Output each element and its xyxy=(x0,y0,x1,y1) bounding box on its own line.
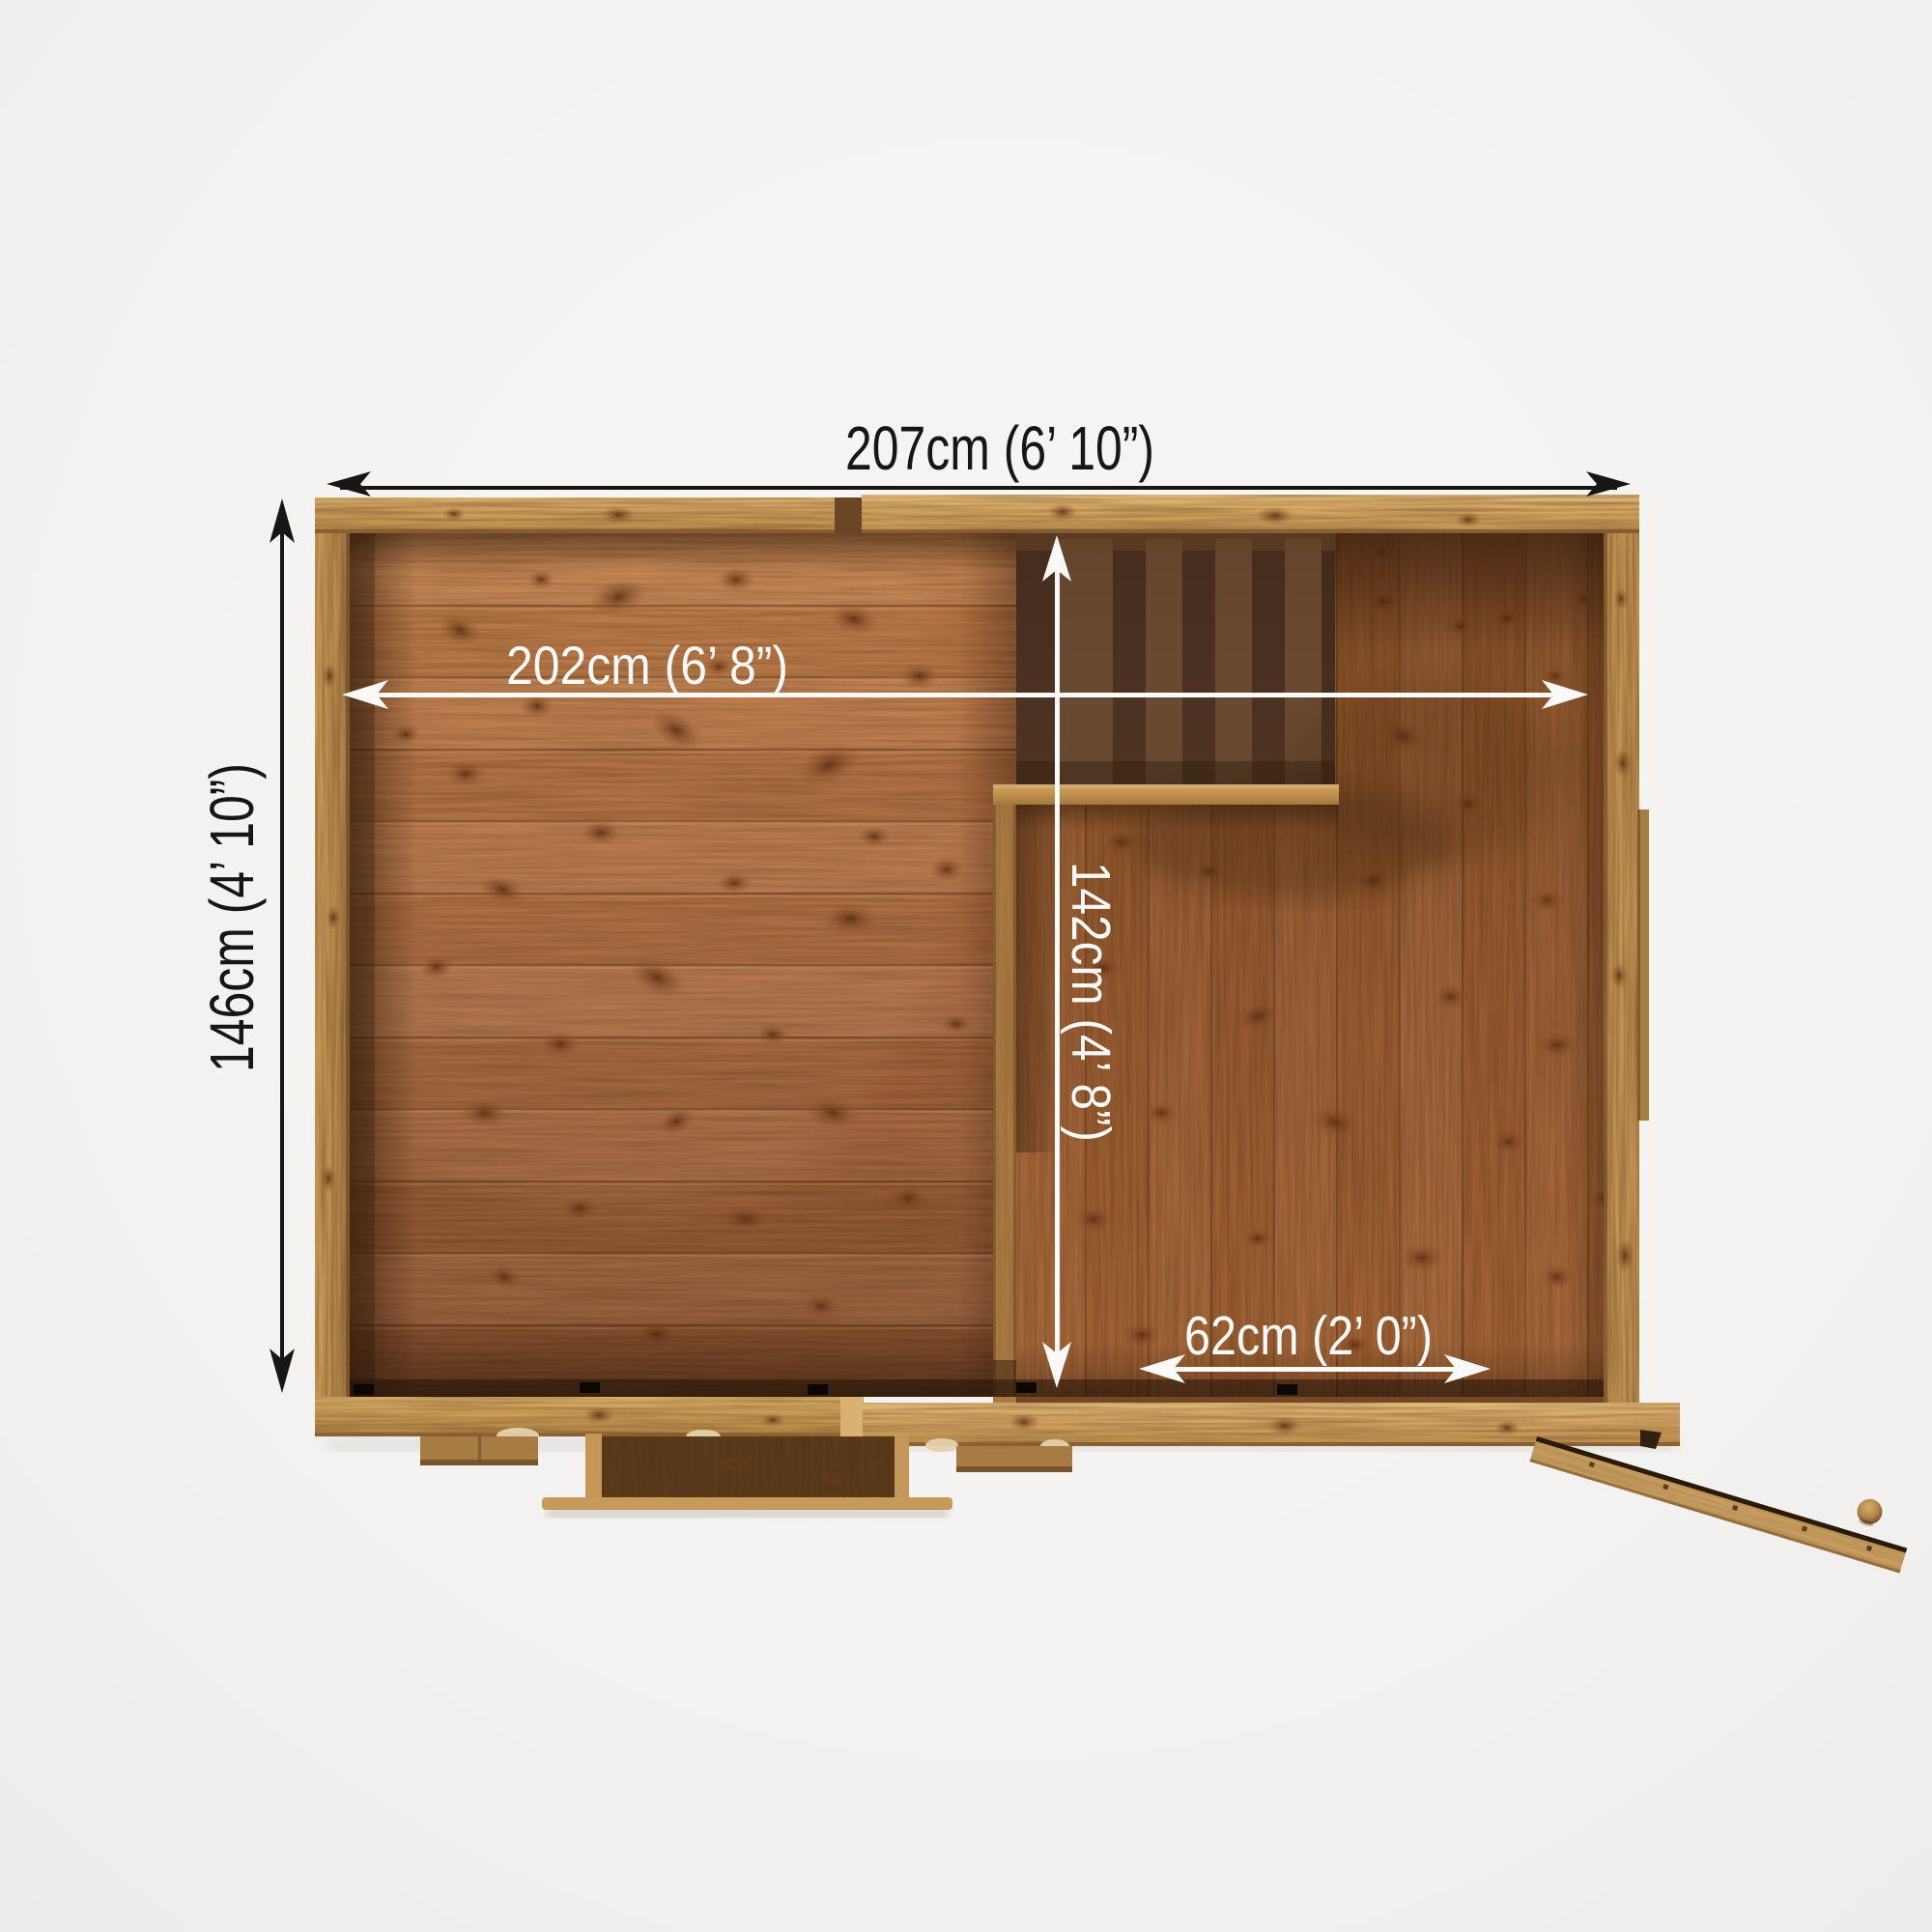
svg-text:62cm (2’ 0”): 62cm (2’ 0”) xyxy=(1184,1305,1433,1367)
svg-text:202cm (6’ 8”): 202cm (6’ 8”) xyxy=(506,635,788,696)
svg-text:142cm (4’ 8”): 142cm (4’ 8”) xyxy=(1060,862,1122,1142)
svg-text:207cm (6’ 10”): 207cm (6’ 10”) xyxy=(845,413,1154,483)
svg-text:146cm (4’ 10”): 146cm (4’ 10”) xyxy=(197,763,267,1072)
